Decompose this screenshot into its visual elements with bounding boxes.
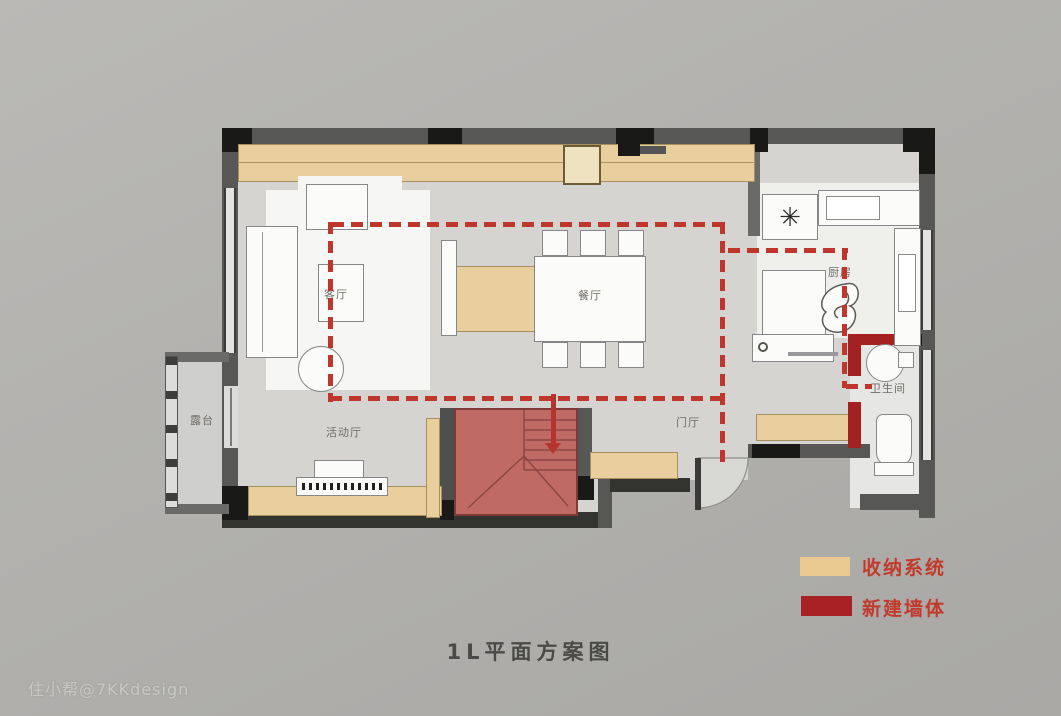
wall-niche xyxy=(640,146,666,154)
window-left xyxy=(224,188,236,353)
bathroom-fixture xyxy=(898,352,914,368)
storage-dining-island xyxy=(455,266,535,332)
plan-title: 1L平面方案图 xyxy=(0,636,1061,666)
cabinet-knob xyxy=(758,342,768,352)
wall-foyer-bottom xyxy=(610,478,690,492)
stove-icon: ✳ xyxy=(762,194,818,240)
room-label-kitchen: 厨房 xyxy=(818,266,862,280)
room-label-living: 客厅 xyxy=(312,288,360,302)
new-wall-bathroom-left-lower xyxy=(848,402,861,448)
wall-bathroom-bottom xyxy=(860,494,935,510)
room-label-activity: 活动厅 xyxy=(314,426,374,440)
route-dashed-line xyxy=(720,222,725,468)
window-terrace xyxy=(165,356,178,508)
dining-side-panel xyxy=(441,240,457,336)
storage-cabinet-line xyxy=(239,162,754,163)
floor-plan-page: 露台 客厅 餐厅 ✳ 厨房 xyxy=(0,0,1061,716)
legend-label-new-wall: 新建墙体 xyxy=(862,594,946,621)
dining-chair xyxy=(618,342,644,368)
wall-corner-block xyxy=(222,486,248,520)
wall-niche xyxy=(618,144,640,156)
piano-keys xyxy=(302,483,382,490)
storage-shoe-cabinet xyxy=(756,414,854,441)
room-label-foyer: 门厅 xyxy=(664,416,712,430)
wall-corner-block xyxy=(616,128,654,144)
dining-chair xyxy=(580,230,606,256)
cabinet-handle xyxy=(788,352,838,356)
storage-shoe-cabinet xyxy=(590,452,678,479)
route-dashed-line xyxy=(330,396,722,401)
appliance-box xyxy=(563,145,601,185)
storage-stair-side xyxy=(426,418,440,518)
new-wall-bathroom-left-upper xyxy=(848,334,861,376)
toilet xyxy=(876,414,912,466)
dining-chair xyxy=(542,342,568,368)
wall-corner-block xyxy=(440,500,454,520)
stairs-arrow-head xyxy=(545,443,561,454)
room-label-dining: 餐厅 xyxy=(566,289,614,303)
legend-swatch-storage xyxy=(800,557,850,576)
route-dashed-line xyxy=(842,248,847,388)
desk-chair xyxy=(816,280,864,336)
route-dashed-line xyxy=(846,384,872,389)
sofa-line xyxy=(262,232,263,352)
wall-corner-block xyxy=(903,128,935,152)
window-right-upper xyxy=(921,230,933,330)
room-label-terrace: 露台 xyxy=(178,414,226,428)
route-dashed-line xyxy=(332,222,724,227)
entry-door-icon xyxy=(692,452,762,518)
legend-label-storage: 收纳系统 xyxy=(862,553,946,580)
legend-swatch-new-wall xyxy=(801,596,852,616)
route-dashed-line xyxy=(328,222,333,402)
wall-corner-block xyxy=(428,128,462,144)
wall-corner-block xyxy=(919,150,935,174)
route-dashed-line xyxy=(728,248,848,253)
wall-top xyxy=(222,128,935,144)
kitchen-counter-inset xyxy=(898,254,916,312)
terrace-floor xyxy=(175,358,229,508)
ottoman xyxy=(298,346,344,392)
kitchen-sink xyxy=(826,196,880,220)
stairs-direction-arrow xyxy=(551,394,556,444)
toilet-tank xyxy=(874,462,914,476)
wall-corner-block xyxy=(576,476,594,500)
sofa xyxy=(246,226,298,358)
dining-chair xyxy=(580,342,606,368)
watermark: 住小帮@7KKdesign xyxy=(28,676,189,700)
dining-chair xyxy=(542,230,568,256)
terrace-door-leaf xyxy=(230,388,232,446)
stairs-treads xyxy=(454,408,578,518)
dining-chair xyxy=(618,230,644,256)
window-right-lower xyxy=(921,350,933,460)
